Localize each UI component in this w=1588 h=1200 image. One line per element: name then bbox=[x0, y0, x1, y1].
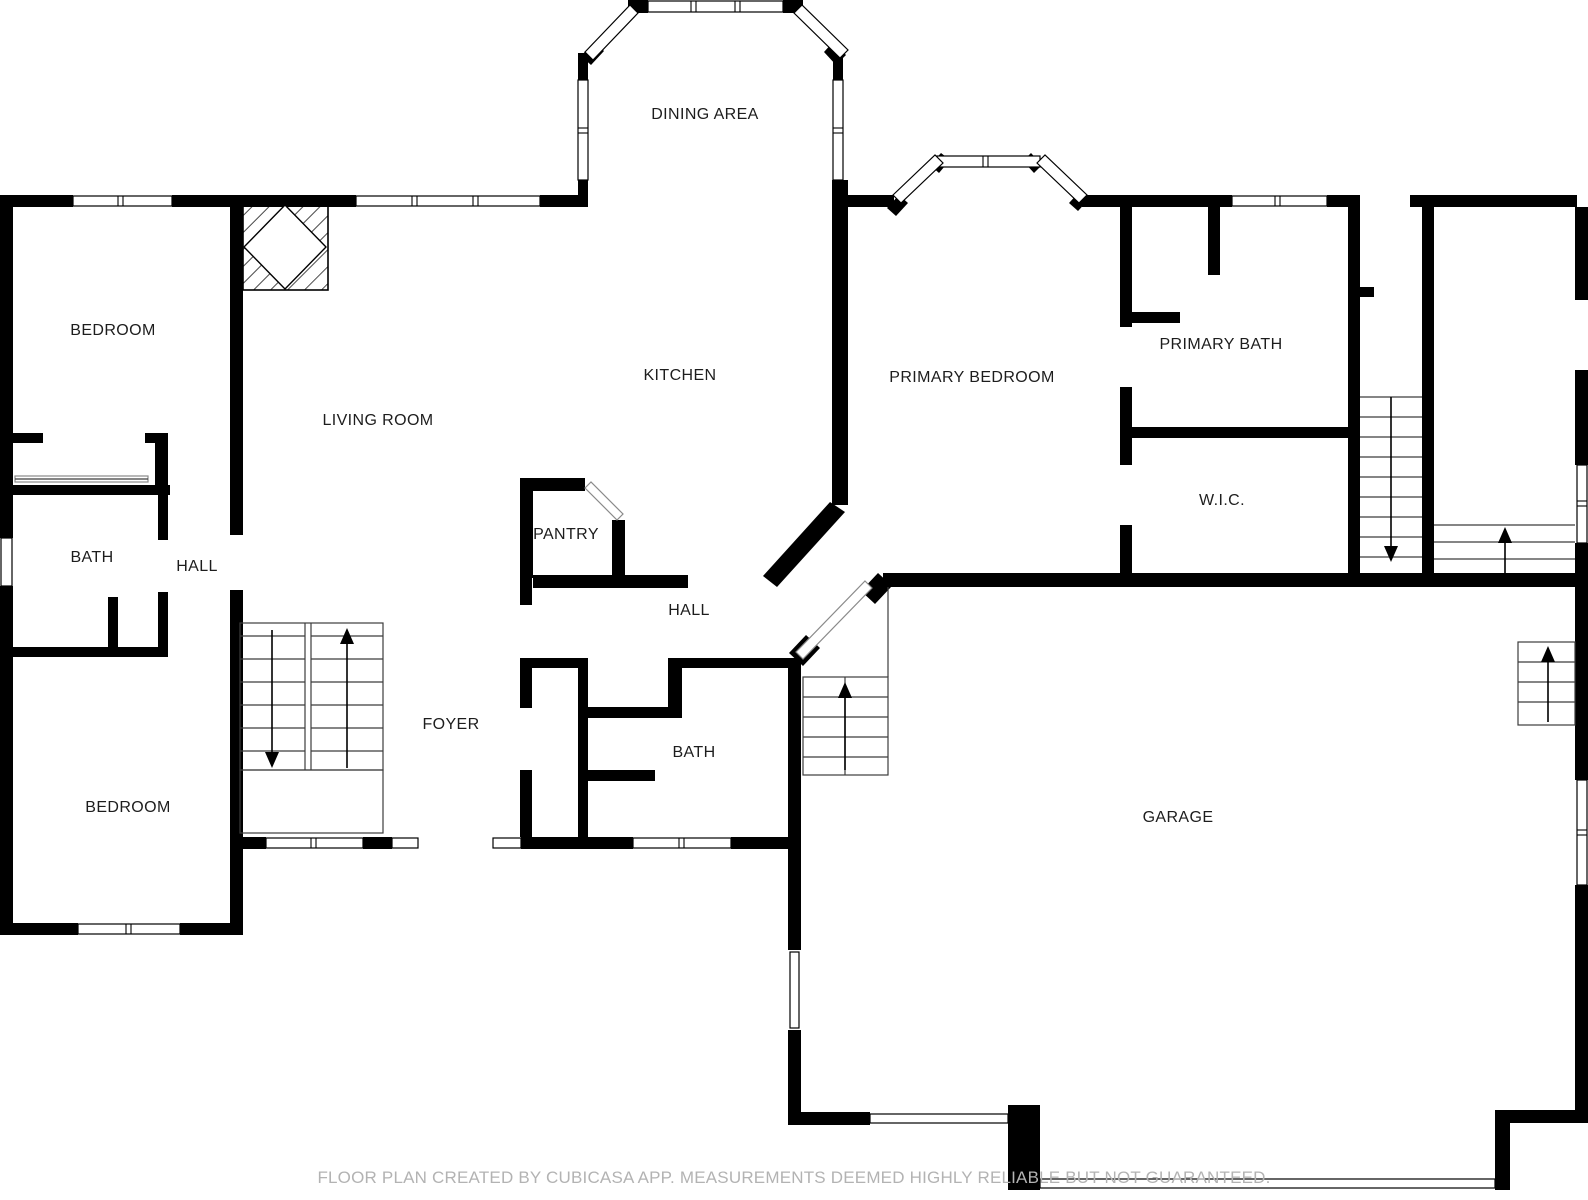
room-label-foyer: FOYER bbox=[422, 716, 479, 734]
room-label-bath-center: BATH bbox=[672, 744, 715, 762]
room-label-bedroom-bottom-left: BEDROOM bbox=[85, 799, 170, 817]
floorplan-drawing bbox=[0, 0, 1588, 1200]
room-label-bedroom-top-left: BEDROOM bbox=[70, 322, 155, 340]
stairs-layer bbox=[240, 397, 1575, 833]
footer-disclaimer: FLOOR PLAN CREATED BY CUBICASA APP. MEAS… bbox=[0, 1168, 1588, 1188]
doors-layer bbox=[15, 476, 872, 659]
room-label-dining-area: DINING AREA bbox=[651, 106, 759, 124]
room-label-garage: GARAGE bbox=[1143, 809, 1214, 827]
fireplace bbox=[243, 203, 328, 290]
room-label-pantry: PANTRY bbox=[533, 526, 599, 544]
room-label-hall-left: HALL bbox=[176, 558, 218, 576]
room-label-wic: W.I.C. bbox=[1199, 492, 1245, 510]
room-label-kitchen: KITCHEN bbox=[643, 367, 716, 385]
room-label-hall-center: HALL bbox=[668, 602, 710, 620]
room-label-living-room: LIVING ROOM bbox=[322, 412, 433, 430]
room-label-bath-left: BATH bbox=[70, 549, 113, 567]
floorplan-canvas: DINING AREA BEDROOM KITCHEN PRIMARY BEDR… bbox=[0, 0, 1588, 1200]
room-label-primary-bedroom: PRIMARY BEDROOM bbox=[889, 369, 1054, 387]
room-label-primary-bath: PRIMARY BATH bbox=[1159, 336, 1282, 354]
